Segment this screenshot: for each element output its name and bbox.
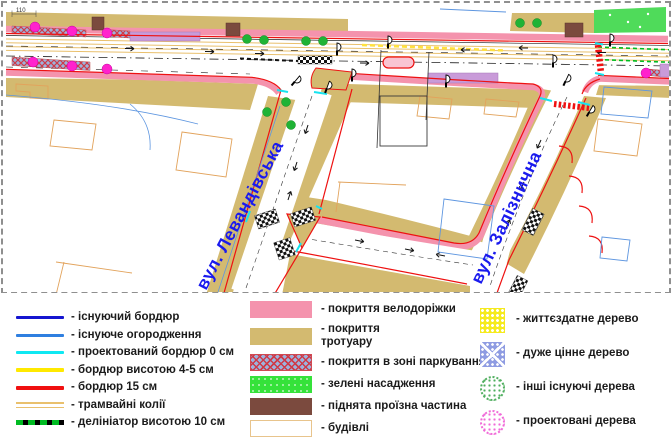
plan-svg: 110 вул. Левандівська вул. Залізнична: [3, 3, 669, 292]
other-existing-trees-symbol: [480, 376, 505, 401]
raised-carriageway-swatch: [250, 398, 312, 415]
legend-label: - інші існуючі дерева: [516, 381, 635, 394]
legend-item-bike-path-surface: - покриття велодоріжки: [250, 301, 486, 318]
delineator-swatch: [16, 420, 64, 425]
existing-tree-dot: [319, 37, 328, 46]
legend-item-projected-trees: - проектовані дерева: [480, 405, 639, 439]
green-area-topright: [594, 7, 666, 33]
legend-item-buildings: - будівлі: [250, 420, 486, 437]
legend-column-trees: - життєздатне дерево - дуже цінне дерево…: [480, 303, 639, 439]
plan-drawing-area: 110 вул. Левандівська вул. Залізнична: [1, 1, 671, 294]
legend-item-curb-4-5: - бордюр висотою 4-5 см: [16, 362, 234, 380]
buildings-swatch: [250, 420, 312, 437]
legend-label: - піднята проїзна частина: [321, 400, 466, 413]
legend-column-lines: - існуючий бордюр - існуюче огородження …: [16, 309, 234, 432]
legend-label: - покриття велодоріжки: [321, 303, 456, 316]
legend-item-existing-fence: - існуюче огородження: [16, 327, 234, 345]
legend-item-curb-15: - бордюр 15 см: [16, 379, 234, 397]
legend-item-projected-curb-0: - проектований бордюр 0 см: [16, 344, 234, 362]
existing-fence-line: [440, 9, 506, 12]
green-plantings-swatch: [250, 376, 312, 393]
curb-15-swatch: [16, 386, 64, 390]
legend-label: - існуючий бордюр: [71, 311, 179, 324]
legend-label: - існуюче огородження: [71, 329, 202, 342]
refuge-island: [383, 57, 414, 68]
projected-tree-dot: [67, 26, 77, 36]
legend-label: - бордюр висотою 4-5 см: [71, 364, 214, 377]
projected-tree-dot: [30, 22, 40, 32]
projected-tree-dot: [28, 57, 38, 67]
legend-label: - проектований бордюр 0 см: [71, 346, 234, 359]
legend-item-raised-carriageway: - піднята проїзна частина: [250, 398, 486, 415]
projected-curb-swatch: [16, 351, 64, 354]
viable-tree-symbol: [480, 308, 505, 333]
bike-path-swatch: [250, 301, 312, 318]
road-design-plan: 110 вул. Левандівська вул. Залізнична - …: [0, 0, 672, 448]
existing-tree-dot: [302, 37, 311, 46]
legend-item-viable-tree: - життєздатне дерево: [480, 303, 639, 337]
legend-label: - делініатор висотою 10 см: [71, 416, 225, 429]
legend-column-areas: - покриття велодоріжки - покриття тротуа…: [250, 301, 486, 442]
legend-label: - покриття тротуару: [321, 323, 416, 349]
existing-tree-dot: [282, 98, 291, 107]
projected-trees-symbol: [480, 410, 505, 435]
existing-tree-dot: [260, 36, 269, 45]
dimension-label: 110: [16, 8, 26, 14]
tram-tracks-swatch: [16, 402, 64, 408]
legend-label: - трамвайні колії: [71, 399, 165, 412]
legend-item-delineator: - делініатор висотою 10 см: [16, 414, 234, 432]
legend-item-existing-curb: - існуючий бордюр: [16, 309, 234, 327]
existing-tree-dot: [263, 108, 272, 117]
sidewalk-swatch: [250, 328, 312, 345]
projected-tree-dot: [67, 61, 77, 71]
legend-item-valuable-tree: - дуже цінне дерево: [480, 337, 639, 371]
projected-tree-dot: [102, 64, 112, 74]
existing-tree-dot: [533, 19, 542, 28]
parking-bay-outline: [579, 206, 592, 223]
existing-curb-swatch: [16, 316, 64, 319]
curb-4-5-swatch: [16, 368, 64, 372]
projected-tree-dot: [641, 68, 651, 78]
parking-bay-outline: [589, 236, 602, 253]
legend-label: - покриття в зоні паркування: [321, 356, 486, 369]
legend-label: - зелені насадження: [321, 378, 435, 391]
legend-item-other-existing-trees: - інші існуючі дерева: [480, 371, 639, 405]
parking-bay-outline: [569, 176, 582, 193]
existing-fence-swatch: [16, 334, 64, 337]
legend-item-green-plantings: - зелені насадження: [250, 376, 486, 393]
legend-label: - життєздатне дерево: [516, 313, 639, 326]
legend-label: - дуже цінне дерево: [516, 347, 629, 360]
existing-tree-dot: [516, 19, 525, 28]
legend-item-sidewalk-surface: - покриття тротуару: [250, 323, 486, 349]
projected-tree-dot: [102, 28, 112, 38]
legend-label: - будівлі: [321, 422, 369, 435]
legend-item-parking-surface: - покриття в зоні паркування: [250, 354, 486, 371]
legend-item-tram-tracks: - трамвайні колії: [16, 397, 234, 415]
legend-label: - проектовані дерева: [516, 415, 636, 428]
legend-label: - бордюр 15 см: [71, 381, 157, 394]
legend: - існуючий бордюр - існуюче огородження …: [0, 293, 672, 448]
existing-tree-dot: [243, 35, 252, 44]
existing-tree-dot: [287, 121, 296, 130]
valuable-tree-symbol: [480, 342, 505, 367]
parking-zone-swatch: [250, 354, 312, 371]
